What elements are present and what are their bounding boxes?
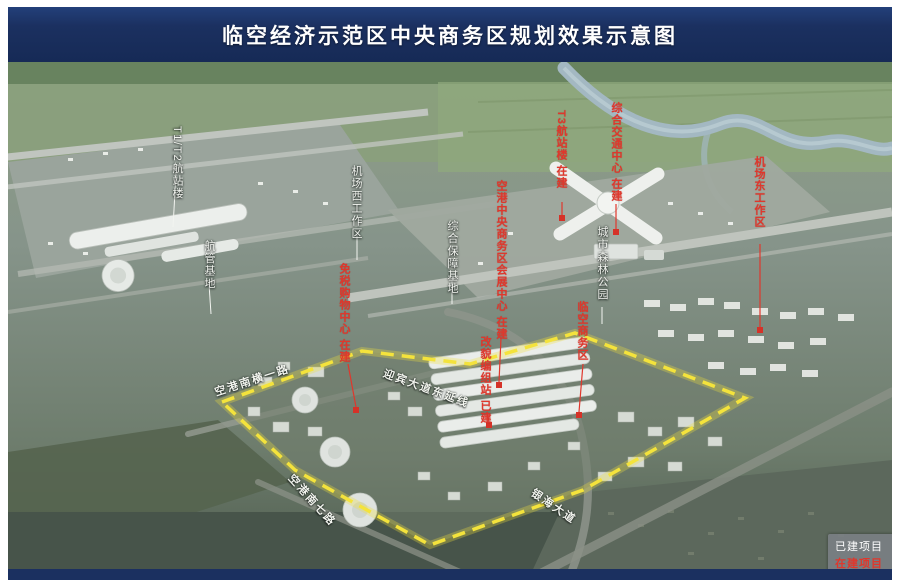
- label-atc-base: 航管基地: [202, 240, 215, 290]
- label-support-base: 综合保障基地: [445, 220, 458, 295]
- label-city-park: 城市森林公园: [595, 226, 608, 301]
- title-bar: 临空经济示范区中央商务区规划效果示意图: [8, 7, 892, 62]
- aerial-background: [8, 62, 892, 580]
- label-t3-terminal: T3航站楼 在建: [554, 110, 567, 189]
- label-t1-t2-terminal: T1/T2航站楼: [170, 126, 183, 200]
- legend-built-projects: 已建项目: [835, 540, 891, 554]
- page-title: 临空经济示范区中央商务区规划效果示意图: [222, 20, 678, 50]
- aerial-rendering: T1/T2航站楼 航管基地 机场西工作区 综合保障基地 城市森林公园 T3航站楼…: [8, 62, 892, 580]
- bottom-bar: [8, 569, 892, 580]
- label-airport-west-work-area: 机场西工作区: [349, 165, 362, 240]
- label-marshalling-yard: 改貌编组站 已建: [478, 336, 491, 424]
- label-duty-free-center: 免税购物中心 在建: [337, 263, 350, 363]
- label-cbd-expo-center: 空港中央商务区会展中心 在建: [494, 180, 507, 340]
- label-airport-east-work-area: 机场东工作区: [752, 156, 765, 228]
- label-airport-business-zone: 临空商务区: [575, 301, 588, 361]
- label-transport-center: 综合交通中心 在建: [609, 102, 622, 202]
